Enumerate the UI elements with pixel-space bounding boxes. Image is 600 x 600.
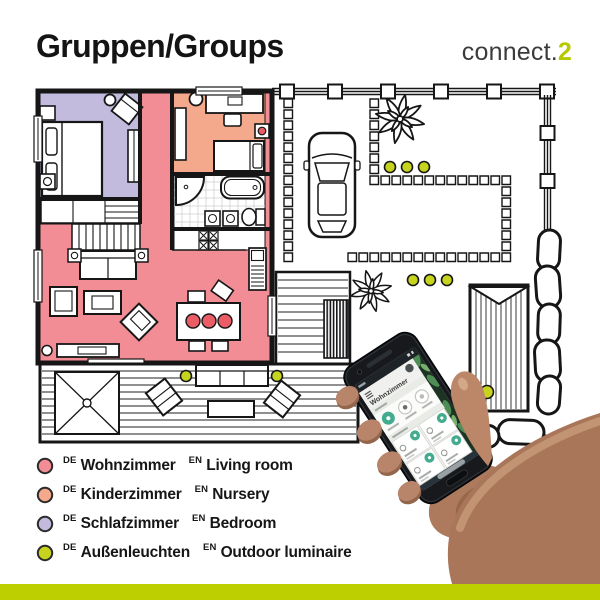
legend-de-word: Wohnzimmer — [81, 457, 176, 475]
legend-de-word: Kinderzimmer — [81, 486, 182, 504]
garden-plant-bottom — [346, 266, 397, 317]
deck-bench — [196, 365, 268, 386]
outdoor-light-dot — [272, 371, 283, 382]
legend-de-tag: DE — [63, 542, 77, 553]
legend-de-tag: DE — [63, 455, 77, 466]
garden-steps — [276, 272, 350, 364]
kitchen — [174, 229, 265, 250]
toilet — [242, 209, 256, 226]
outdoor-light-dot — [419, 162, 430, 173]
staircase — [72, 224, 140, 250]
dining-chair — [189, 341, 205, 351]
legend-de-word: Außenleuchten — [81, 544, 190, 562]
legend-swatch-bedroom — [36, 515, 54, 533]
wall-lamp — [258, 127, 266, 135]
outdoor-light-dot — [181, 371, 192, 382]
tv-sideboard — [57, 344, 119, 357]
ceiling-lamp — [105, 95, 116, 106]
deck-table — [208, 401, 254, 417]
garden-plant-top — [371, 90, 429, 148]
garden-fence-right — [541, 95, 555, 232]
outdoor-light-dot — [385, 162, 396, 173]
legend-en-tag: EN — [195, 484, 209, 495]
outdoor-light-dot — [425, 275, 436, 286]
table-setting — [186, 314, 232, 328]
outdoor-light-dot — [408, 275, 419, 286]
car — [304, 133, 360, 237]
legend: DE Wohnzimmer EN Living room DE Kinderzi… — [36, 451, 352, 567]
garden-fence-top — [272, 85, 556, 99]
dining-chair — [188, 291, 205, 302]
legend-en-word: Bedroom — [210, 515, 277, 533]
legend-swatch-outdoor — [36, 544, 54, 562]
house — [34, 87, 276, 367]
legend-en-word: Outdoor luminaire — [221, 544, 352, 562]
legend-en-word: Nursery — [212, 486, 269, 504]
legend-row-nursery: DE Kinderzimmer EN Nursery — [36, 480, 352, 509]
legend-en-tag: EN — [203, 542, 217, 553]
floor-grate — [324, 300, 348, 358]
legend-en-word: Living room — [206, 457, 293, 475]
wardrobe — [41, 200, 139, 223]
dining-chair — [212, 341, 228, 351]
legend-en-tag: EN — [192, 513, 206, 524]
legend-row-bedroom: DE Schlafzimmer EN Bedroom — [36, 509, 352, 538]
footer-accent-bar — [0, 584, 600, 600]
deck — [40, 364, 358, 442]
legend-swatch-nursery — [36, 486, 54, 504]
coffee-table — [84, 291, 121, 314]
legend-de-tag: DE — [63, 513, 77, 524]
legend-swatch-living — [36, 457, 54, 475]
legend-row-living: DE Wohnzimmer EN Living room — [36, 451, 352, 480]
outdoor-light-dot — [402, 162, 413, 173]
legend-de-word: Schlafzimmer — [81, 515, 179, 533]
legend-en-tag: EN — [189, 455, 203, 466]
legend-row-outdoor: DE Außenleuchten EN Outdoor luminaire — [36, 538, 352, 567]
page: Gruppen/Groups connect.2 — [0, 0, 600, 600]
outdoor-light-dot — [442, 275, 453, 286]
legend-de-tag: DE — [63, 484, 77, 495]
desk-chair — [224, 114, 241, 126]
